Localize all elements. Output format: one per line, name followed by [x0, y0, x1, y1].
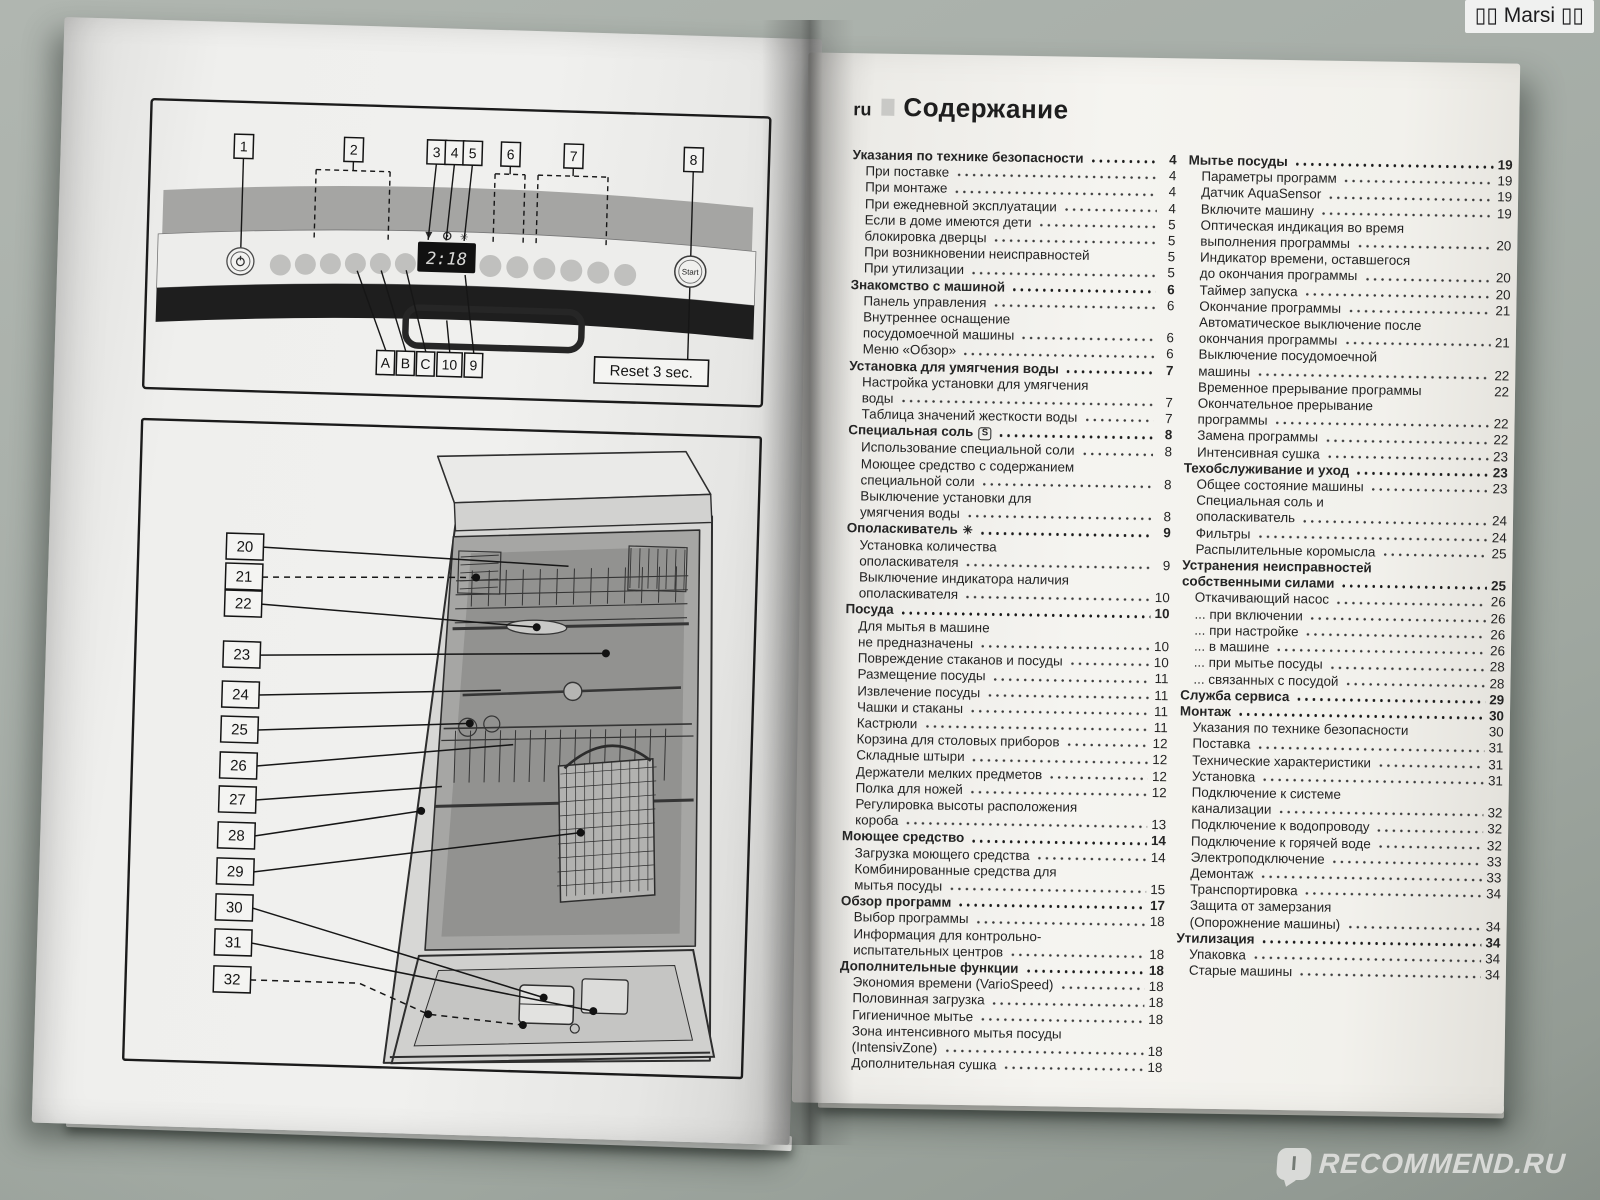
toc-entry-title: Служба сервиса	[1180, 687, 1289, 705]
toc-page-number: 23	[1491, 465, 1508, 481]
toc-entry-title: Поставка	[1192, 736, 1250, 753]
toc-entry-title: короба	[855, 812, 898, 829]
callout-label: B	[401, 355, 411, 371]
callout-label: 20	[236, 538, 253, 555]
toc-entry-title: ополаскивателя	[859, 586, 959, 604]
toc-page-number: 18	[1146, 1044, 1163, 1060]
toc-page-number: 34	[1483, 935, 1500, 951]
toc-page-number: 22	[1492, 384, 1509, 400]
callout-label: 24	[232, 686, 249, 703]
dot-leader	[1080, 443, 1153, 460]
toc-page-number: 34	[1483, 967, 1500, 983]
toc-page-number: 22	[1492, 368, 1509, 384]
toc-page-number: 31	[1486, 757, 1503, 773]
toc-entry-title: ... при настройке	[1194, 622, 1299, 640]
toc-page-number: 9	[1154, 525, 1171, 541]
dot-leader	[1048, 767, 1148, 785]
toc-entry-title: Меню «Обзор»	[862, 342, 956, 360]
toc-page-number: 33	[1484, 870, 1501, 886]
toc-page-number: 11	[1151, 687, 1168, 703]
dot-leader	[1414, 723, 1484, 740]
start-button-label: Start	[682, 267, 700, 277]
recommend-logo-text: RECOMMEND.RU	[1318, 1148, 1567, 1180]
toc-page-number: 18	[1145, 1060, 1162, 1076]
toc-page-number: 8	[1155, 444, 1172, 460]
manual-left-page: 2:18 ✳ Start Reset 3 sec.	[32, 17, 822, 1145]
dot-leader	[1370, 479, 1489, 497]
dot-leader	[1059, 978, 1144, 996]
dot-leader	[1298, 964, 1481, 983]
control-panel-diagram: 2:18 ✳ Start Reset 3 sec.	[142, 98, 772, 408]
toc-entry-title: не предназначены	[858, 634, 973, 652]
toc-page-number: 14	[1149, 849, 1166, 865]
toc-page-number: 12	[1150, 752, 1167, 768]
dot-leader	[1381, 544, 1487, 562]
toc-page-number: 5	[1158, 249, 1175, 265]
toc-page-number: 19	[1495, 173, 1512, 189]
toc-page-number: 30	[1487, 708, 1504, 724]
toc-entry-title: программы	[1197, 412, 1267, 429]
toc-entry-title: Размещение посуды	[857, 667, 985, 685]
toc-page-number: 7	[1156, 395, 1173, 411]
toc-page-number: 8	[1155, 427, 1172, 443]
interior-diagram: 20212223242526272829303132	[122, 417, 763, 1079]
toc-entry-title: ополаскиватель	[1196, 509, 1295, 527]
toc-entry: Окончательное прерываниепрограммы22	[1184, 395, 1508, 432]
toc-entry: Автоматическое выключение послеокончания…	[1186, 314, 1510, 351]
callout-label: 26	[230, 757, 247, 774]
dot-leader	[1036, 848, 1147, 866]
toc-page-number: 18	[1147, 979, 1164, 995]
callout-label: 22	[235, 595, 252, 612]
manual-contents-page: ru Содержание Указания по технике безопа…	[792, 52, 1520, 1113]
dot-leader	[1063, 199, 1157, 217]
toc-entry: Оптическая индикация во времявыполнения …	[1187, 217, 1511, 254]
time-display: 2:18	[417, 242, 476, 274]
dot-leader	[1363, 269, 1492, 287]
toc-entry-title: Чашки и стаканы	[857, 699, 963, 717]
toc-page-number: 34	[1483, 951, 1500, 967]
toc-page-number: 20	[1493, 287, 1510, 303]
toc-entry-title: блокировка дверцы	[864, 228, 986, 246]
callout-label: 8	[689, 152, 697, 168]
dot-leader	[979, 523, 1152, 542]
callout-label: 27	[229, 791, 246, 808]
toc-entry-title: Выбор программы	[854, 910, 969, 928]
dot-leader	[1083, 410, 1154, 427]
toc-page-number: 23	[1490, 481, 1507, 497]
toc-page-number: 25	[1489, 546, 1506, 562]
toc-page-number: 22	[1491, 433, 1508, 449]
top-watermark: ▯▯ Marsi ▯▯	[1465, 0, 1594, 33]
toc-entry-title: ополаскивателя	[859, 553, 959, 571]
toc-entry: Комбинированные средства длямытья посуды…	[841, 861, 1165, 898]
toc-entry: Для мытья в машинене предназначены10	[845, 618, 1169, 655]
callout-leader-line	[262, 571, 476, 583]
toc-page-number: 8	[1154, 477, 1171, 493]
toc-entry: Устранения неисправностейсобственными си…	[1182, 557, 1506, 594]
toc-entry-title: Кастрюли	[857, 715, 918, 732]
callout-label: 32	[223, 971, 240, 988]
toc-entry-title: Демонтаж	[1190, 866, 1253, 883]
toc-entry-title: Включите машину	[1201, 201, 1314, 219]
toc-entry-title: Утилизация	[1176, 930, 1254, 947]
toc-page-number: 6	[1157, 330, 1174, 346]
toc-page-number: 12	[1150, 785, 1167, 801]
toc-page-number: 12	[1150, 736, 1167, 752]
toc-page-number: 5	[1158, 265, 1175, 281]
toc-entry-title: воды	[862, 390, 894, 407]
toc-entry-title: Замена программы	[1197, 428, 1318, 446]
toc-page-number: 32	[1485, 822, 1502, 838]
toc-entry: Индикатор времени, оставшегосядо окончан…	[1187, 250, 1511, 287]
callout-label: 3	[433, 144, 441, 160]
contents-column-1: Указания по технике безопасности4При пос…	[838, 147, 1176, 1076]
toc-page-number: 18	[1147, 947, 1164, 963]
toc-entry: Выключение посудомоечноймашины22	[1185, 347, 1509, 384]
toc-page-number: 18	[1146, 1011, 1163, 1027]
toc-entry-title: машины	[1198, 363, 1250, 380]
rinse-aid-icon: ✳	[963, 522, 973, 538]
callout-label: 4	[451, 145, 459, 161]
dot-leader	[1326, 446, 1490, 465]
toc-entry-title: Старые машины	[1189, 963, 1292, 981]
dot-leader	[1375, 820, 1483, 838]
toc-page-number: 24	[1490, 530, 1507, 546]
toc-page-number: 7	[1156, 363, 1173, 379]
contents-columns: Указания по технике безопасности4При пос…	[838, 147, 1500, 1081]
toc-page-number: 14	[1149, 833, 1166, 849]
toc-page-number: 11	[1151, 671, 1168, 687]
dot-leader	[1377, 836, 1483, 854]
dot-leader	[1068, 654, 1149, 671]
toc-page-number: 18	[1148, 914, 1165, 930]
language-marker	[881, 99, 894, 116]
bottom-watermark: I RECOMMEND.RU	[1276, 1148, 1567, 1180]
toc-page-number: 25	[1489, 579, 1506, 595]
callout-label: 5	[469, 145, 477, 161]
callout-label: 6	[507, 146, 515, 162]
toc-entry-title: При монтаже	[865, 180, 947, 197]
toc-entry: Настройка установки для умягченияводы7	[849, 374, 1173, 411]
callout-label: 29	[227, 863, 244, 880]
toc-page-number: 4	[1159, 184, 1176, 200]
toc-entry-title: При утилизации	[864, 261, 964, 279]
toc-page-number: 11	[1151, 704, 1168, 720]
toc-entry: Внутреннее оснащениепосудомоечной машины…	[850, 309, 1174, 346]
toc-page-number: 28	[1487, 676, 1504, 692]
callout-label: 23	[233, 646, 250, 663]
dot-leader	[1095, 248, 1156, 265]
reset-callout: Reset 3 sec.	[594, 357, 709, 386]
power-button	[227, 247, 255, 275]
toc-entry-title: Установка	[1192, 768, 1256, 785]
toc-page-number: 7	[1155, 411, 1172, 427]
toc-page-number: 24	[1490, 514, 1507, 530]
toc-entry-title: Извлечение посуды	[857, 683, 980, 701]
dot-leader	[1377, 755, 1485, 773]
toc-page-number: 10	[1152, 639, 1169, 655]
toc-page-number: 22	[1491, 417, 1508, 433]
contents-header: ru Содержание	[853, 91, 1069, 125]
toc-page-number: 17	[1148, 898, 1165, 914]
callout-label: 21	[235, 568, 252, 585]
dot-leader	[1002, 1058, 1143, 1076]
toc-page-number: 6	[1157, 298, 1174, 314]
toc-page-number: 28	[1488, 660, 1505, 676]
toc-page-number: 6	[1156, 346, 1173, 362]
callout-label: 10	[441, 356, 457, 372]
toc-page-number: 32	[1485, 838, 1502, 854]
toc-entry: Зона интенсивного мытья посуды(IntensivZ…	[839, 1023, 1163, 1060]
toc-entry-title: Складные штыри	[856, 748, 965, 766]
toc-entry: Моющее средство с содержаниемспециальной…	[847, 456, 1171, 493]
toc-page-number: 19	[1495, 190, 1512, 206]
toc-entry-title: Полка для ножей	[856, 780, 963, 798]
callout-label: 28	[228, 827, 245, 844]
toc-entry: Установка количестваополаскивателя9	[846, 537, 1170, 574]
callout-label: 7	[570, 148, 578, 164]
toc-page-number: 4	[1159, 201, 1176, 217]
toc-entry-title: Фильтры	[1196, 525, 1251, 542]
toc-entry-title: Специальная соль	[848, 423, 973, 441]
toc-entry-title: Обзор программ	[841, 893, 952, 911]
dot-leader	[1037, 215, 1156, 233]
toc-entry-title: Датчик AquaSensor	[1201, 185, 1321, 203]
toc-page-number: 21	[1493, 303, 1510, 319]
toc-page-number: 13	[1149, 817, 1166, 833]
toc-entry-title: (IntensivZone)	[852, 1039, 938, 1057]
toc-entry: Информация для контрольно-испытательных …	[840, 926, 1164, 963]
language-code: ru	[853, 99, 871, 120]
toc-entry: Специальная соль иополаскиватель24	[1183, 493, 1507, 530]
toc-page-number: 9	[1153, 558, 1170, 574]
toc-page-number: 21	[1493, 335, 1510, 351]
toc-entry-title: Монтаж	[1180, 703, 1231, 720]
toc-page-number: 8	[1154, 509, 1171, 525]
dot-leader	[1089, 151, 1157, 168]
toc-entry: Выключение установки дляумягчения воды8	[847, 488, 1171, 525]
toc-page-number: 10	[1152, 655, 1169, 671]
toc-page-number: 5	[1158, 233, 1175, 249]
callout-leader-line	[254, 806, 421, 841]
toc-entry-title: Моющее средство	[842, 828, 965, 846]
toc-entry-title: Панель управления	[863, 293, 986, 311]
toc-page-number: 10	[1152, 606, 1169, 622]
callout-label: 30	[226, 899, 243, 916]
callout-label: 9	[469, 357, 477, 373]
toc-page-number: 33	[1485, 854, 1502, 870]
toc-entry-title: умягчения воды	[860, 505, 960, 523]
toc-page-number: 19	[1495, 206, 1512, 222]
toc-entry-title: Таймер запуска	[1199, 282, 1297, 300]
toc-page-number: 26	[1488, 611, 1505, 627]
toc-page-number: 34	[1484, 886, 1501, 902]
toc-page-number: 20	[1494, 238, 1511, 254]
toc-page-number: 34	[1484, 919, 1501, 935]
reset-label: Reset 3 sec.	[609, 362, 693, 381]
cutlery-basket	[555, 744, 660, 905]
toc-page-number: 6	[1157, 282, 1174, 298]
callout-label: 2	[350, 142, 358, 158]
callout-label: 31	[225, 934, 242, 951]
page-title: Содержание	[903, 92, 1069, 126]
toc-page-number: 11	[1151, 720, 1168, 736]
toc-entry-title: ... при мытье посуды	[1194, 655, 1323, 673]
toc-page-number: 31	[1486, 741, 1503, 757]
toc-page-number: 18	[1147, 963, 1164, 979]
display-value: 2:18	[426, 249, 468, 270]
dot-leader	[992, 295, 1155, 314]
toc-page-number: 26	[1488, 643, 1505, 659]
toc-entry-title: Упаковка	[1189, 947, 1246, 964]
toc-page-number: 26	[1489, 595, 1506, 611]
callout-label: A	[381, 355, 391, 371]
toc-page-number: 32	[1485, 805, 1502, 821]
toc-page-number: 5	[1158, 217, 1175, 233]
toc-page-number: 20	[1494, 271, 1511, 287]
toc-page-number: 19	[1495, 157, 1512, 173]
toc-entry-title: Дополнительная сушка	[851, 1055, 996, 1073]
start-button: Start	[674, 256, 706, 288]
toc-entry-title: ... при включении	[1194, 606, 1302, 624]
dot-leader	[1065, 735, 1148, 753]
toc-entry-title: Ополаскиватель	[847, 521, 958, 539]
dispenser-compartment	[581, 979, 628, 1014]
toc-entry-title: Гигиеничное мытье	[852, 1007, 973, 1025]
toc-page-number: 23	[1491, 449, 1508, 465]
dot-leader	[1065, 361, 1155, 379]
toc-entry: Выключение индикатора наличияополаскиват…	[846, 569, 1170, 606]
toc-entry: Защита от замерзания(Опорожнение машины)…	[1177, 898, 1501, 935]
toc-page-number: 30	[1487, 724, 1504, 740]
toc-entry: Регулировка высоты расположениякороба13	[842, 796, 1166, 833]
toc-entry-title: Интенсивная сушка	[1197, 444, 1320, 462]
toc-page-number: 4	[1160, 152, 1177, 168]
callout-label: 1	[240, 138, 248, 154]
special-salt-icon: S	[978, 428, 992, 441]
recommend-logo-icon: I	[1276, 1148, 1312, 1180]
dot-leader	[1427, 383, 1490, 400]
callout-leader-line	[255, 781, 441, 806]
toc-entry-title: канализации	[1191, 801, 1271, 818]
toc-entry-title: Транспортировка	[1190, 882, 1298, 900]
toc-page-number: 26	[1488, 627, 1505, 643]
toc-entry-title: мытья посуды	[854, 877, 942, 895]
toc-entry: Подключение к системеканализации32	[1178, 784, 1502, 821]
callout-label: C	[420, 356, 431, 372]
toc-entry-title: специальной соли	[860, 472, 974, 490]
toc-page-number: 31	[1486, 773, 1503, 789]
toc-page-number: 15	[1148, 882, 1165, 898]
callout-label: 25	[231, 721, 248, 738]
toc-page-number: 10	[1153, 590, 1170, 606]
contents-column-2: Мытье посуды19Параметры программ19Датчик…	[1174, 152, 1512, 1081]
dot-leader	[1024, 961, 1145, 979]
toc-entry-title: Посуда	[845, 602, 893, 619]
toc-entry-title: ... в машине	[1194, 639, 1270, 656]
toc-entry-title: Мытье посуды	[1189, 152, 1288, 170]
toc-page-number: 29	[1487, 692, 1504, 708]
toc-page-number: 4	[1159, 168, 1176, 184]
toc-entry-title: При поставке	[865, 164, 949, 182]
toc-page-number: 12	[1150, 768, 1167, 784]
toc-page-number: 18	[1146, 995, 1163, 1011]
